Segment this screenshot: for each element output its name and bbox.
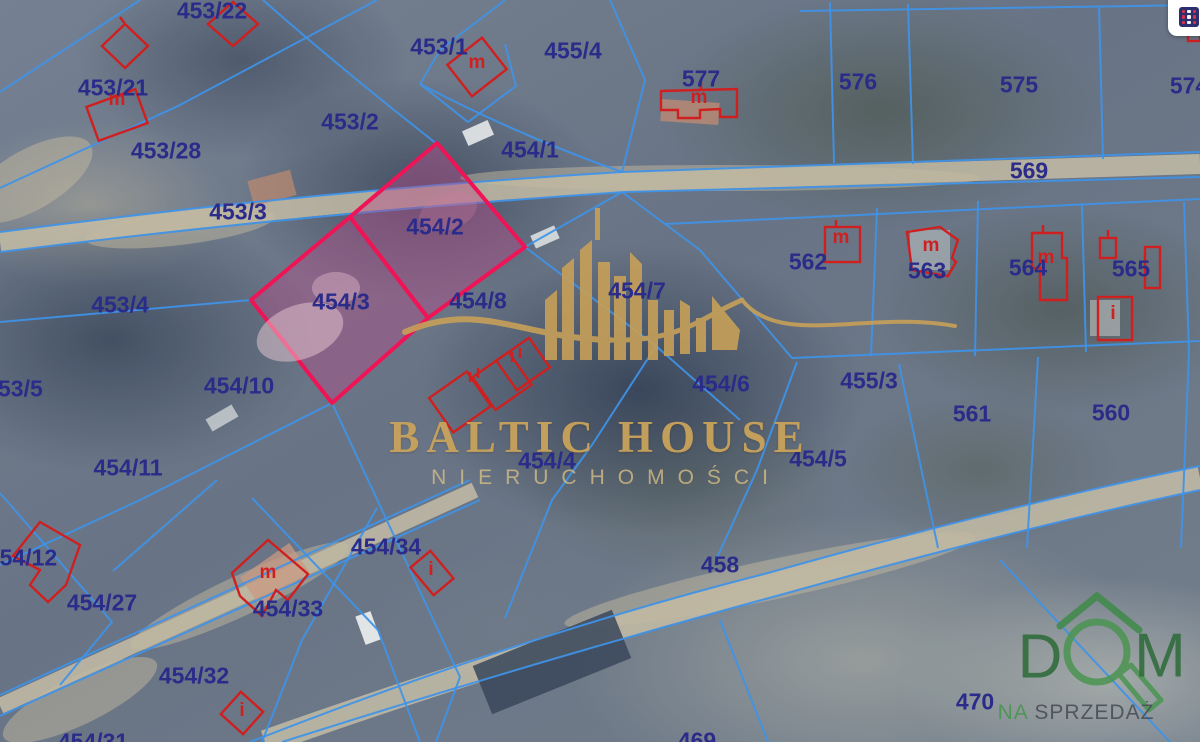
parcel-label: 453/22 bbox=[177, 0, 247, 25]
parcel-label: 562 bbox=[789, 249, 827, 276]
parcel-label: 576 bbox=[839, 69, 877, 96]
parcel-label: 454/32 bbox=[159, 663, 229, 690]
watermark-subtitle: NIERUCHOMOŚCI bbox=[431, 466, 781, 490]
building-letter-mark: m bbox=[109, 89, 126, 111]
legend-grid-icon bbox=[1179, 7, 1199, 27]
parcel-label: 453/28 bbox=[131, 138, 201, 165]
parcel-label: 561 bbox=[953, 401, 991, 428]
parcel-label: 454/2 bbox=[406, 214, 464, 241]
layers-button[interactable] bbox=[1168, 0, 1200, 36]
parcel-label: 454/7 bbox=[608, 278, 666, 305]
logo-letter-m: M bbox=[1134, 621, 1186, 692]
building-letter-mark: m bbox=[833, 227, 850, 249]
parcel-label: 560 bbox=[1092, 400, 1130, 427]
parcel-label: 454/10 bbox=[204, 373, 274, 400]
logo-letter-d: D bbox=[1018, 622, 1063, 693]
parcel-label: 454/1 bbox=[501, 137, 559, 164]
parcel-label: 453/3 bbox=[209, 199, 267, 226]
logo-tagline-word: SPRZEDAŻ bbox=[1034, 701, 1154, 724]
parcel-label: 454/31 bbox=[58, 729, 128, 742]
parcel-label: 453/5 bbox=[0, 376, 43, 403]
logo-tagline-prefix: NA bbox=[998, 701, 1028, 724]
parcel-label: 575 bbox=[1000, 72, 1038, 99]
parcel-label: 454/6 bbox=[692, 371, 750, 398]
parcel-label: 454/3 bbox=[312, 289, 370, 316]
parcel-label: 454/8 bbox=[449, 288, 507, 315]
parcel-label: 453/2 bbox=[321, 109, 379, 136]
building-letter-mark: m bbox=[469, 52, 486, 74]
parcel-label: 469 bbox=[678, 728, 716, 742]
parcel-label: 453/1 bbox=[410, 34, 468, 61]
parcel-label: 454/34 bbox=[351, 534, 421, 561]
parcel-label: 563 bbox=[908, 258, 946, 285]
watermark-title: BALTIC HOUSE bbox=[389, 411, 810, 463]
parcel-label: 569 bbox=[1010, 158, 1048, 185]
parcel-label: 454/27 bbox=[67, 590, 137, 617]
building-letter-mark: m bbox=[260, 562, 277, 584]
parcel-label: 470 bbox=[956, 689, 994, 716]
building-letter-mark: m bbox=[691, 87, 708, 109]
parcel-label: 454/12 bbox=[0, 545, 57, 572]
parcel-label: 453/4 bbox=[91, 292, 149, 319]
building-letter-mark: m bbox=[923, 235, 940, 257]
parcel-label: 574 bbox=[1170, 73, 1200, 100]
parcel-label: 455/4 bbox=[544, 38, 602, 65]
parcel-label: 458 bbox=[701, 552, 739, 579]
logo-tagline: NA SPRZEDAŻ bbox=[998, 701, 1155, 725]
building-letter-mark: i bbox=[239, 700, 244, 722]
cadastral-map[interactable]: 453/22453/21453/28453/2453/1455/45775765… bbox=[0, 0, 1200, 742]
parcel-label: 454/33 bbox=[253, 596, 323, 623]
parcel-label: 455/3 bbox=[840, 368, 898, 395]
parcel-label: 454/11 bbox=[93, 455, 162, 482]
building-letter-mark: i bbox=[1110, 303, 1115, 325]
parcel-label: 565 bbox=[1112, 256, 1150, 283]
building-letter-mark: i bbox=[428, 559, 433, 581]
building-letter-mark: m bbox=[1038, 247, 1055, 269]
